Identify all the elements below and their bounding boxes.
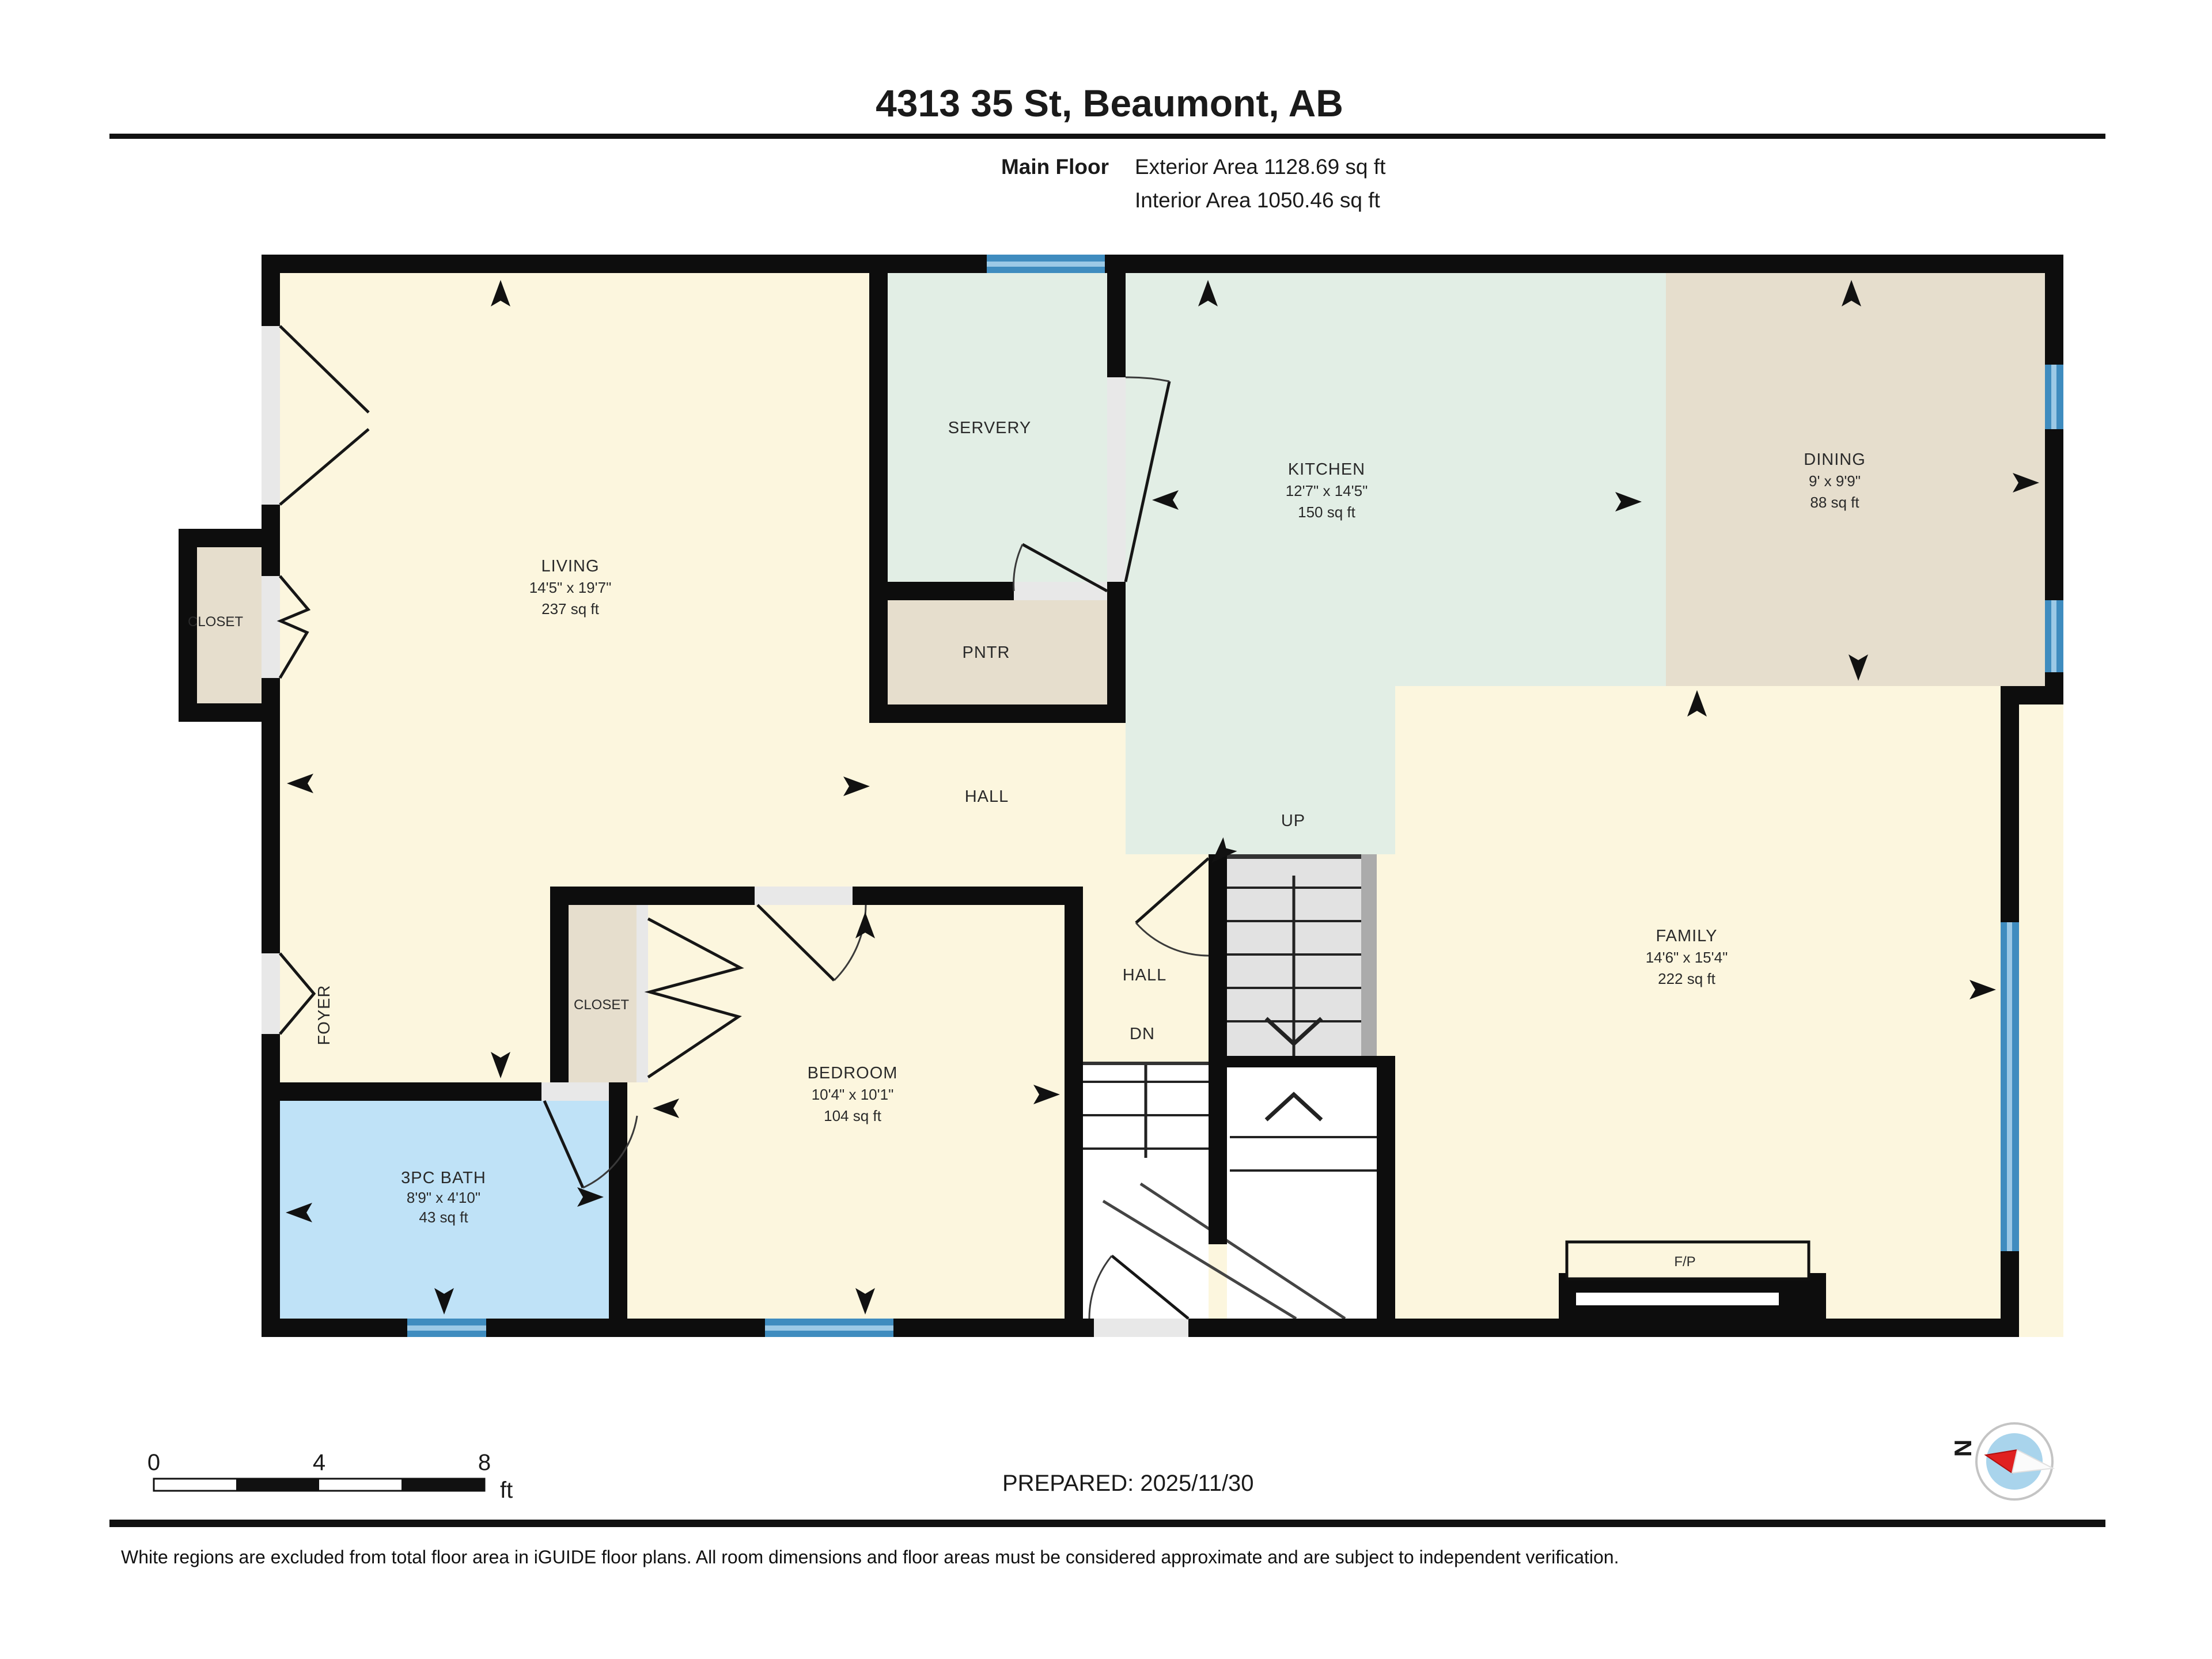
bedroom-area: 104 sq ft: [824, 1107, 882, 1124]
compass: N: [1949, 1423, 2053, 1499]
dining-label: DINING: [1804, 450, 1866, 469]
foyer-label: FOYER: [315, 985, 334, 1046]
floor-label: Main Floor: [1001, 155, 1109, 179]
bedroom-label: BEDROOM: [808, 1064, 898, 1082]
living-dims: 14'5" x 19'7": [529, 579, 612, 596]
pantry-label: PNTR: [963, 643, 1010, 662]
window-bedroom-bottom: [765, 1319, 893, 1337]
compass-north-label: N: [1949, 1440, 1976, 1457]
bath-area: 43 sq ft: [419, 1209, 468, 1226]
servery-label: SERVERY: [948, 419, 1032, 437]
stairs-up-label: UP: [1281, 812, 1305, 830]
dining-area: 88 sq ft: [1810, 494, 1859, 511]
kitchen-area-lower: [1126, 686, 1395, 854]
fireplace: [1559, 1242, 1826, 1319]
fireplace-label: F/P: [1674, 1254, 1695, 1270]
family-area: 222 sq ft: [1658, 970, 1716, 987]
scale-bar: 0 4 8 ft: [147, 1450, 513, 1503]
exterior-area: Exterior Area 1128.69 sq ft: [1135, 155, 1386, 179]
kitchen-dims: 12'7" x 14'5": [1286, 482, 1368, 499]
floor-plan-page: 4313 35 St, Beaumont, AB Main Floor Exte…: [0, 0, 2212, 1659]
living-label: LIVING: [541, 557, 599, 575]
kitchen-label: KITCHEN: [1288, 460, 1365, 479]
hall-main-label: HALL: [965, 787, 1009, 806]
kitchen-area: 150 sq ft: [1298, 503, 1356, 521]
stairs-down-label: DN: [1130, 1025, 1155, 1043]
kitchen-area: [1126, 273, 1666, 686]
window-bath-bottom: [407, 1319, 486, 1337]
stairs-down-right-area: [1227, 1067, 1377, 1319]
family-label: FAMILY: [1656, 927, 1718, 945]
disclaimer-text: White regions are excluded from total fl…: [121, 1547, 1619, 1567]
bath-dims: 8'9" x 4'10": [407, 1189, 480, 1206]
bedroom-dims: 10'4" x 10'1": [812, 1086, 894, 1103]
prepared-date: PREPARED: 2025/11/30: [1002, 1471, 1254, 1496]
window-dining-right-2: [2045, 600, 2063, 672]
footer-rule: [109, 1520, 2105, 1527]
scale-tick-8: 8: [478, 1450, 491, 1475]
closet-bedroom-area: [569, 905, 637, 1082]
bath-label: 3PC BATH: [401, 1169, 486, 1187]
header-rule: [109, 134, 2105, 139]
window-dining-right-1: [2045, 365, 2063, 429]
scale-tick-0: 0: [147, 1450, 160, 1475]
closet-bedroom-label: CLOSET: [574, 997, 629, 1013]
family-dims: 14'6" x 15'4": [1646, 949, 1728, 966]
hall-small-label: HALL: [1123, 966, 1167, 984]
living-area: 237 sq ft: [541, 600, 600, 618]
stairs-half-wall: [1361, 854, 1377, 1067]
window-top-living: [987, 255, 1105, 273]
fireplace-firebox: [1576, 1293, 1779, 1305]
scale-unit: ft: [500, 1478, 513, 1503]
dining-dims: 9' x 9'9": [1809, 472, 1861, 490]
closet-left-label: CLOSET: [188, 614, 243, 630]
window-family-right: [2001, 922, 2019, 1251]
scale-tick-4: 4: [313, 1450, 325, 1475]
interior-area: Interior Area 1050.46 sq ft: [1135, 188, 1380, 212]
page-title: 4313 35 St, Beaumont, AB: [876, 82, 1343, 124]
